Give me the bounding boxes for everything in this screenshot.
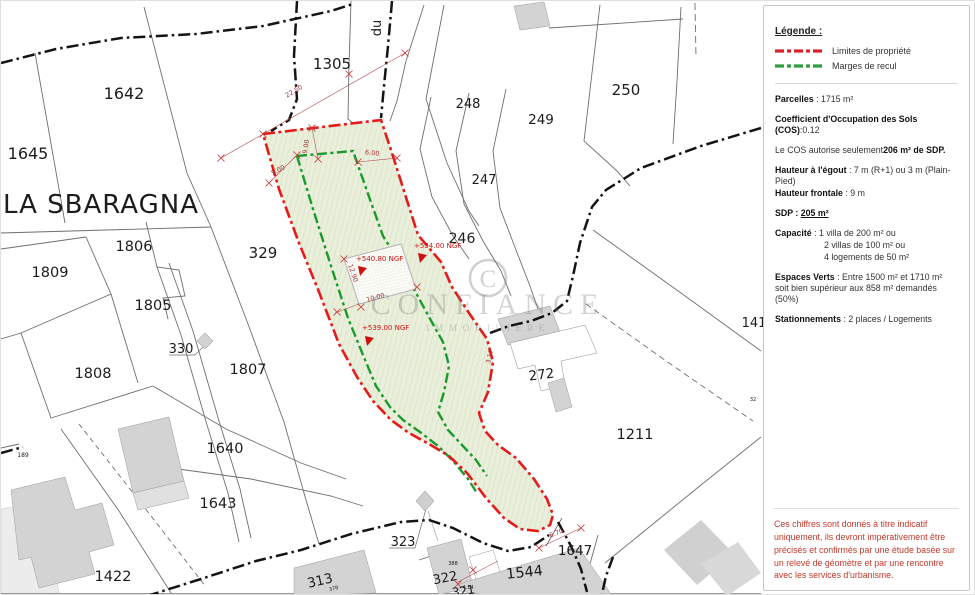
place-name: LA SBARAGNA: [3, 190, 199, 220]
parcel-label: 1809: [32, 265, 69, 281]
parcel-label: 1806: [116, 239, 153, 255]
parcel-label: 246: [449, 231, 476, 247]
parcel-label: 1805: [135, 298, 172, 314]
parcel-label: 249: [528, 112, 554, 128]
ngf-label: +540.80 NGF: [356, 255, 403, 263]
parcel-label: 1643: [200, 496, 237, 512]
parcel-label: 323: [391, 535, 416, 550]
parcel-label: 4.14: [462, 585, 473, 591]
legend-item-label: Marges de recul: [832, 61, 897, 71]
parcel-label: 1211: [617, 427, 654, 443]
parcel-label: 1305: [313, 55, 351, 73]
info-panel: Légende : Limites de propriété Marges de…: [763, 5, 970, 591]
capacite-row: Capacité : 1 villa de 200 m² ou: [775, 228, 958, 239]
parcel-label: 1807: [230, 362, 267, 378]
panel-divider: [775, 83, 958, 84]
cos-note-row: Le COS autorise seulement206 m² de SDP.: [775, 145, 958, 156]
parcel-label: 272: [528, 366, 556, 385]
cadastral-map: 22.50 9.00 6.00 5.00 6.70 12.90 10.00 3.…: [1, 1, 763, 595]
parcel-label: 1647: [558, 543, 592, 559]
capacite-line3: 4 logements de 50 m²: [775, 252, 958, 263]
espaces-verts-row: Espaces Verts : Entre 1500 m² et 1710 m²…: [775, 272, 958, 305]
watermark-name: CONFIANCE: [371, 288, 606, 321]
hauteur-frontale-row: Hauteur frontale : 9 m: [775, 188, 958, 199]
cadastral-plan-page: 22.50 9.00 6.00 5.00 6.70 12.90 10.00 3.…: [0, 0, 975, 595]
parcel-label: 330: [169, 342, 194, 357]
parcel-label: 247: [472, 173, 497, 188]
red-dashdot-line-icon: [775, 48, 823, 54]
stationnements-row: Stationnements : 2 places / Logements: [775, 314, 958, 325]
parcel-label: 250: [612, 81, 641, 99]
legend-item-setback-margins: Marges de recul: [775, 61, 958, 71]
watermark-subtitle: IMMOBILIERE: [426, 324, 550, 334]
legend-item-property-limits: Limites de propriété: [775, 46, 958, 56]
parcel-label: 1640: [207, 441, 244, 457]
parcel-label: 329: [249, 244, 278, 262]
capacite-line2: 2 villas de 100 m² ou: [775, 240, 958, 251]
parcel-label: 248: [456, 97, 481, 112]
legend-title: Légende :: [775, 26, 958, 37]
green-dashdot-line-icon: [775, 63, 823, 69]
dim-label: 6.00: [365, 148, 380, 157]
parcelles-row: Parcelles : 1715 m²: [775, 94, 958, 105]
hauteur-egout-row: Hauteur à l'égout : 7 m (R+1) ou 3 m (Pl…: [775, 165, 958, 187]
parcel-label: 189: [17, 452, 29, 459]
parcel-label: 1642: [104, 84, 145, 103]
parcel-label: 32: [750, 397, 756, 403]
disclaimer-text: Ces chiffres sont donnés à titre indicat…: [774, 518, 959, 582]
ngf-label: +539.00 NGF: [362, 324, 409, 332]
parcel-label: 388: [448, 561, 458, 567]
parcel-label: 141: [742, 316, 763, 331]
sdp-row: SDP : 205 m²: [775, 208, 958, 219]
parcel-label: 1645: [8, 144, 49, 163]
street-name: du: [370, 20, 385, 37]
cos-row: Coefficient d'Occupation des Sols (COS):…: [775, 114, 958, 136]
parcel-label: 1808: [75, 366, 112, 382]
parcel-label: 1422: [95, 569, 132, 585]
legend-item-label: Limites de propriété: [832, 46, 911, 56]
disclaimer-section: Ces chiffres sont donnés à titre indicat…: [774, 508, 959, 582]
